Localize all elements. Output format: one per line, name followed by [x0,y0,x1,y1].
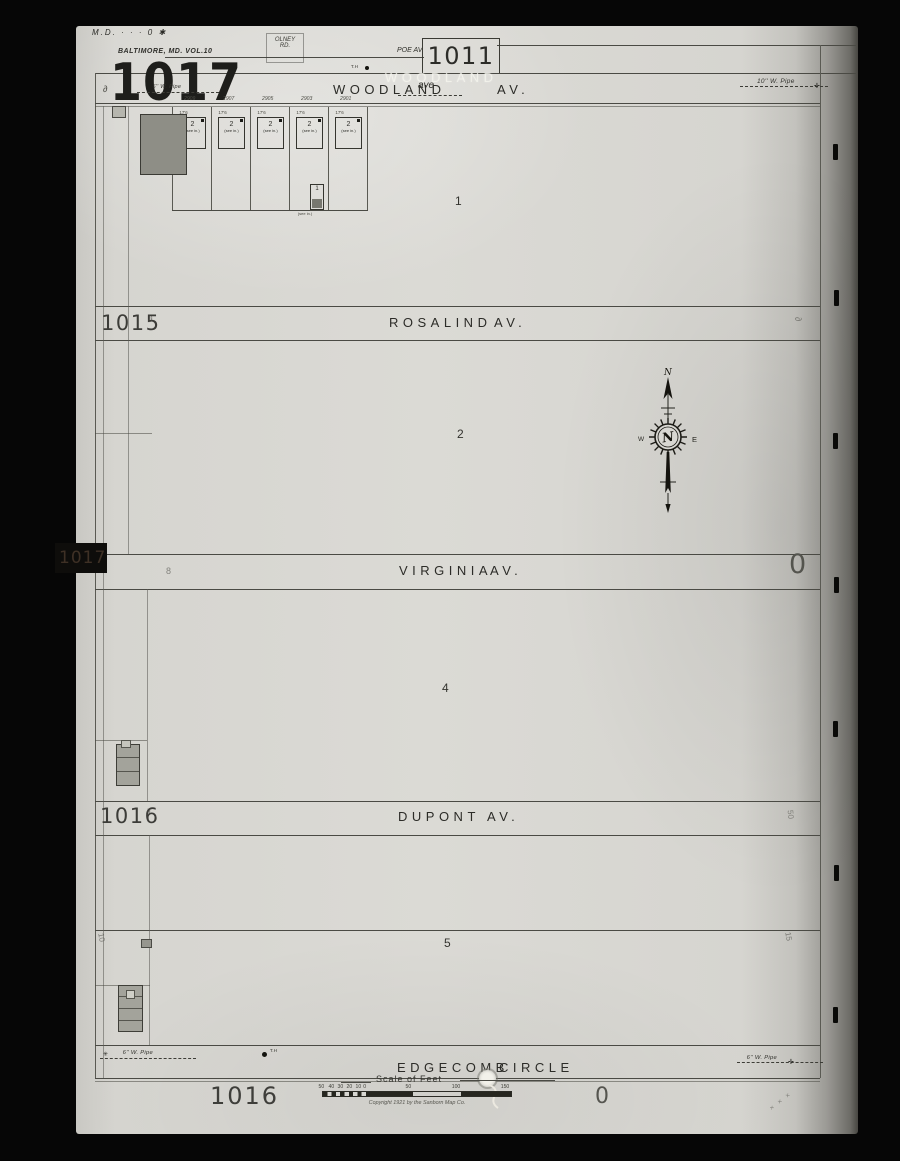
woodland-pipe-dashes-left [137,92,219,93]
bottom-zero: 0 [595,1084,611,1109]
binding-mark [833,144,838,160]
binding-mark [833,1007,838,1023]
lot-block-bottom-line [172,210,368,211]
porch-marker [318,119,321,122]
woodland-pipe-note: 6'' W. Pipe [153,84,182,90]
virginia-north-line [95,554,820,555]
dwelling-footprint: 17'6 2 (see in.) [296,117,323,149]
block-number-1: 1 [455,194,462,208]
margin-number-right-50: 50 [786,810,796,820]
building-division [119,1020,142,1021]
margin-ornament: ∂ [146,807,150,817]
lot-divider-4 [289,107,290,210]
dwelling-footprint: 17'6 2 (see in.) [335,117,362,149]
porch-marker [240,119,243,122]
margin-ornament: ∂ [148,314,152,324]
building-light-court [126,990,135,999]
dimension-note: 17'6 [335,111,343,116]
map-paper-page [76,26,858,1134]
dwelling-footprint: 17'6 2 (see in.) [257,117,284,149]
story-count: 1 [311,186,323,192]
scale-tick: 10 [356,1084,362,1089]
story-count: 2 [258,121,283,128]
building-note: (see in.) [261,129,281,134]
dimension-note: 17'6 [257,111,265,116]
rosalind-north-line [95,306,820,307]
small-corner-building [112,106,126,118]
block2-short-line [95,433,152,434]
scale-title: Scale of Feet [376,1074,442,1084]
street-suffix-rosalind: AV. [494,315,526,330]
story-count: 2 [297,121,322,128]
binding-mark [833,433,838,449]
binding-mark [834,865,839,881]
street-label-dupont: DUPONT [398,809,480,824]
dupont-north-line [95,801,820,802]
index-tab: 1017 [55,543,107,573]
shaded-building-footprint [140,114,187,175]
compass-east-letter: E [692,435,697,444]
house-number: 2907 [223,96,234,101]
scale-rule-right [460,1080,555,1081]
street-label-rosalind: ROSALIND [389,315,491,330]
house-number: 2905 [262,96,273,101]
lot-depth-right: 15 [783,931,793,941]
compass-rosette: N [649,418,687,456]
building-division [117,771,139,772]
poe-avenue-label: POE AV. [397,47,424,54]
dimension-note: 17'6 [296,111,304,116]
right-border-line [820,45,821,1078]
telephone-marker-bottom: T.H [270,1049,277,1054]
hydrant-icon-top-right: ✛ [814,82,820,90]
block4-lot-line [147,589,148,801]
scale-tick: 30 [338,1084,344,1089]
bottom-border-line-2 [95,1081,820,1082]
street-suffix-virginia: AV. [490,563,522,578]
scale-tick: 50 [406,1084,412,1089]
hydrant-icon-bottom-right: ✛ [788,1058,794,1066]
bottom-sheet-ref-1016: 1016 [210,1082,279,1110]
block-number-4: 4 [442,681,449,695]
corner-handwritten-note: M.D. · · · 0 ✱ [92,28,167,37]
index-tab-number: 1017 [55,543,107,568]
building-division [117,757,139,758]
scale-bar-fine-units [323,1092,366,1096]
th-dot-icon-bottom [262,1052,267,1057]
block-number-2: 2 [457,427,464,441]
sheet-number-large: 1017 [110,52,242,112]
scale-tick: 150 [501,1084,510,1089]
th-dot-icon-top [365,66,369,70]
street-label-virginia: VIRGINIA [399,563,492,578]
bottom-border-line [95,1078,820,1079]
telephone-marker-top: T.H [351,65,358,70]
story-count: 2 [219,121,244,128]
outbuilding-shaded-part [312,199,322,208]
porch-marker [357,119,360,122]
small-structure [141,939,152,948]
virginia-south-line [95,589,820,590]
binding-mark [834,290,839,306]
house-number: 2909 [184,96,195,101]
lot-depth-left: 10 [96,932,106,942]
scale-tick: 100 [452,1084,461,1089]
lot-divider-2 [211,107,212,210]
building-note: (see in.) [339,129,359,134]
pipe-label-top-right: 10'' W. Pipe [757,78,795,85]
scanned-sanborn-map-sheet: M.D. · · · 0 ✱ OLNEY RD. BALTIMORE, MD. … [0,0,900,1161]
lot-divider-6 [367,107,368,210]
woodland-annotation-dashes [398,95,462,96]
edgecomb-north-line [95,1045,820,1046]
compass-west-letter: W [638,436,645,443]
margin-ornament-tab: 8 [166,566,171,576]
binding-mark [833,721,838,737]
lot-divider-5 [328,107,329,210]
building-porch [121,740,131,748]
south-tail-tip [665,504,670,513]
block4-building [116,744,140,786]
street-suffix-dupont: AV. [487,809,519,824]
scale-tick: 40 [329,1084,335,1089]
scale-rule-left [341,1082,371,1083]
margin-sheet-ref-1016: 1016 [100,804,159,828]
dupont-south-line [95,835,820,836]
compass-north-letter: N [663,368,673,378]
street-suffix-edgecomb: CIRCLE [499,1060,574,1075]
scale-bar-segment-dark [461,1092,511,1096]
house-number: 2903 [301,96,312,101]
margin-ornament-topleft: ∂ [103,84,107,94]
building-note: (see in.) [300,129,320,134]
block5-lot-line [95,930,820,931]
valve-icon-bottom-left: ✳ [103,1051,108,1058]
left-border-line [95,73,96,1078]
pipe-label-bottom-right: 6'' W. Pipe [747,1054,777,1060]
building-division [119,1008,142,1009]
woodland-handwritten-annotation: ave [418,80,434,91]
edgecomb-pipe-dashes-right [737,1062,823,1063]
scale-bar [322,1091,512,1097]
scale-tick: 20 [347,1084,353,1089]
street-suffix-woodland: AV. [497,82,529,97]
block-number-5: 5 [444,936,451,950]
olney-road-box: OLNEY RD. [266,33,304,63]
binding-mark [834,577,839,593]
copyright-line: Copyright 1921 by the Sanborn Map Co. [359,1100,476,1105]
outbuilding-note: (see in.) [298,212,312,217]
margin-zero-right: 0 [789,549,808,580]
edgecomb-pipe-dashes-left [100,1058,196,1059]
building-note: (see in.) [222,129,242,134]
story-count: 2 [336,121,361,128]
scale-bar-segment-dark [366,1092,413,1096]
top-border-line-right [497,45,856,46]
adjacent-sheet-box: 1011 [422,38,500,73]
south-tail [665,452,671,493]
rosalind-south-line [95,340,820,341]
dimension-note: 17'6 [218,111,226,116]
porch-marker [279,119,282,122]
scale-tick: 50 [319,1084,325,1089]
house-number: 2901 [340,96,351,101]
olney-road-label-2: RD. [267,43,303,49]
dwelling-footprint: 17'6 2 (see in.) [218,117,245,149]
scale-tick: 0 [363,1084,366,1089]
lot-divider-3 [250,107,251,210]
adjacent-sheet-number: 1011 [423,42,499,70]
porch-marker [201,119,204,122]
pipe-label-bottom-left: 6'' W. Pipe [123,1049,153,1055]
compass-rose: N N W E [634,364,702,524]
outbuilding-footprint: 1 [310,184,324,210]
block5-building [118,985,143,1032]
